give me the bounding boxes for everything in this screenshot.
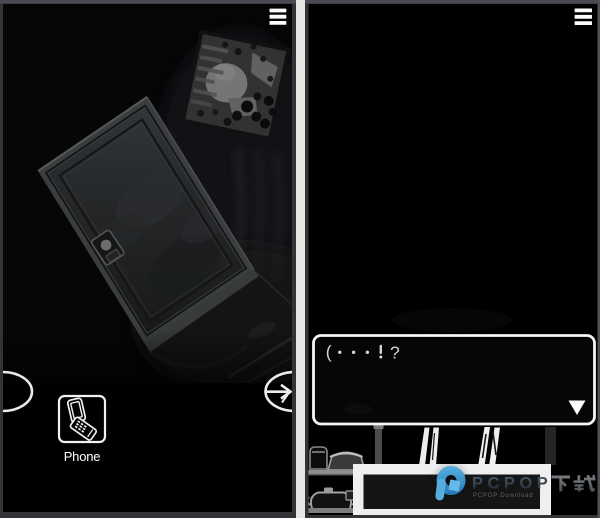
svg-text:Phone: Phone xyxy=(64,449,101,464)
svg-text:PCPOP Download: PCPOP Download xyxy=(473,493,533,499)
svg-text:PCPOP: PCPOP xyxy=(472,475,552,493)
svg-text:?: ? xyxy=(390,343,400,363)
svg-text:(: ( xyxy=(326,342,332,362)
